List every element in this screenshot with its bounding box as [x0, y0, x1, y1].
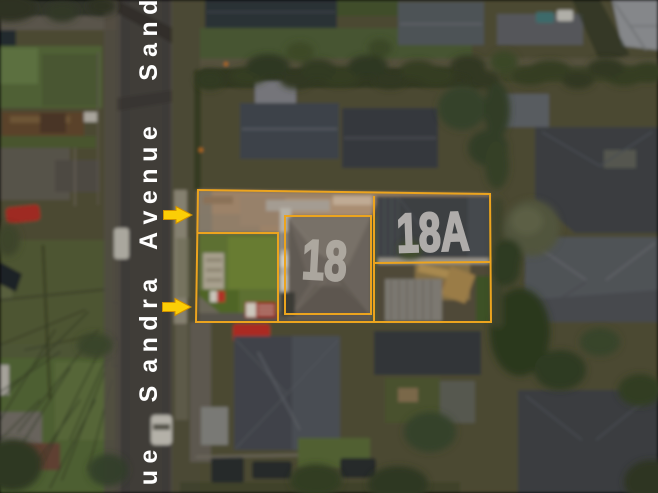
svg-text:18A: 18A — [396, 202, 471, 265]
svg-text:18: 18 — [300, 229, 348, 293]
